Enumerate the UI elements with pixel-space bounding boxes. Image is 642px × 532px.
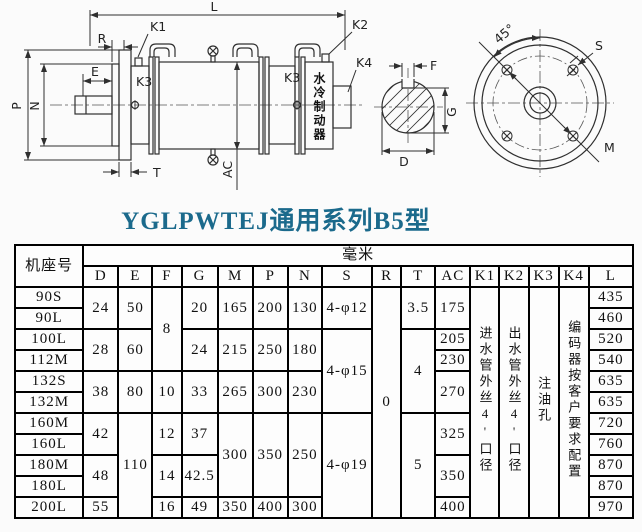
frame-size: 90S xyxy=(15,287,83,308)
table-cell: 33 xyxy=(182,371,218,413)
table-cell: 215 xyxy=(218,329,253,371)
table-cell: 28 xyxy=(83,329,118,371)
table-cell: 130 xyxy=(288,287,322,329)
table-cell: 37 xyxy=(182,413,218,455)
col-header-K1: K1 xyxy=(470,266,499,287)
dim-label-N: N xyxy=(27,101,42,110)
frame-size: 180M xyxy=(15,455,83,476)
table-cell: 4-φ12 xyxy=(322,287,372,329)
table-cell: 4 xyxy=(401,329,435,413)
k3-note: 注油孔 xyxy=(529,287,559,518)
table-cell: 270 xyxy=(435,371,470,413)
table-cell: 635 xyxy=(589,371,633,392)
dim-label-L: L xyxy=(211,0,218,14)
k2-note: 出水管外丝4'口径 xyxy=(499,287,528,518)
k1-note: 进水管外丝4'口径 xyxy=(470,287,499,518)
brake-label: 水冷制动器 xyxy=(312,71,326,142)
col-header-T: T xyxy=(401,266,435,287)
table-cell: 4-φ15 xyxy=(322,329,372,413)
frame-size: 160L xyxy=(15,434,83,455)
dim-label-K3b: K3 xyxy=(284,70,300,85)
table-cell: 230 xyxy=(288,371,322,413)
frame-size: 200L xyxy=(15,497,83,518)
dim-label-S: S xyxy=(595,38,603,53)
table-cell: 3.5 xyxy=(401,287,435,329)
dim-label-K2: K2 xyxy=(352,17,368,32)
col-header-D: D xyxy=(83,266,118,287)
table-cell: 16 xyxy=(152,497,181,518)
col-header-L: L xyxy=(589,266,633,287)
frame-size: 112M xyxy=(15,350,83,371)
table-cell: 300 xyxy=(288,497,322,518)
col-header-K2: K2 xyxy=(499,266,528,287)
side-view-dimensions xyxy=(24,10,356,190)
col-header-P: P xyxy=(253,266,288,287)
dim-label-F: F xyxy=(430,58,437,73)
spec-table: 机座号毫米DEFGMPNSRTACK1K2K3K4L90S24508201652… xyxy=(14,244,634,519)
table-cell: 55 xyxy=(83,497,118,518)
table-cell: 250 xyxy=(288,413,322,497)
table-cell: 325 xyxy=(435,413,470,455)
table-cell: 42.5 xyxy=(182,455,218,497)
frame-size: 180L xyxy=(15,476,83,497)
col-header-R: R xyxy=(372,266,401,287)
table-cell: 435 xyxy=(589,287,633,308)
col-header-N: N xyxy=(288,266,322,287)
table-cell: 24 xyxy=(83,287,118,329)
engineering-drawing: L R K1 K2 E P N T AC K3 K3 K4 水冷制动器 xyxy=(0,0,642,200)
table-cell: 870 xyxy=(589,455,633,476)
col-header-S: S xyxy=(322,266,372,287)
table-cell: 175 xyxy=(435,287,470,329)
dim-label-E: E xyxy=(91,64,99,79)
table-cell: 80 xyxy=(118,371,152,413)
frame-size: 132S xyxy=(15,371,83,392)
dim-label-P: P xyxy=(9,102,24,110)
table-cell: 300 xyxy=(218,413,253,497)
catalog-page: { "title": "YGLPWTEJ通用系列B5型", "accent_co… xyxy=(0,0,642,532)
dim-label-AC: AC xyxy=(220,161,235,178)
table-cell: 400 xyxy=(435,497,470,518)
col-header-G: G xyxy=(182,266,218,287)
table-cell: 24 xyxy=(182,329,218,371)
unit-header: 毫米 xyxy=(83,245,633,266)
table-cell: 200 xyxy=(253,287,288,329)
table-cell: 970 xyxy=(589,497,633,518)
table-cell: 250 xyxy=(253,329,288,371)
table-cell: 265 xyxy=(218,371,253,413)
spec-table-body: 机座号毫米DEFGMPNSRTACK1K2K3K4L90S24508201652… xyxy=(15,245,633,518)
col-header-E: E xyxy=(118,266,152,287)
flange-view xyxy=(466,29,614,177)
dim-label-D: D xyxy=(399,154,409,169)
table-cell: 48 xyxy=(83,455,118,497)
table-cell: 635 xyxy=(589,392,633,413)
dim-label-K4: K4 xyxy=(356,55,372,70)
frame-size: 90L xyxy=(15,308,83,329)
frame-size: 100L xyxy=(15,329,83,350)
table-cell: 49 xyxy=(182,497,218,518)
table-cell: 720 xyxy=(589,413,633,434)
table-cell: 300 xyxy=(253,371,288,413)
dim-label-K1: K1 xyxy=(150,19,166,34)
table-cell: 460 xyxy=(589,308,633,329)
table-cell: 760 xyxy=(589,434,633,455)
table-cell: 42 xyxy=(83,413,118,455)
table-cell: 5 xyxy=(401,413,435,518)
table-cell: 20 xyxy=(182,287,218,329)
k4-note: 编码器按客户要求配置 xyxy=(559,287,589,518)
frame-col-header: 机座号 xyxy=(15,245,83,287)
table-cell: 400 xyxy=(253,497,288,518)
dim-label-K3: K3 xyxy=(136,74,152,89)
dim-label-T: T xyxy=(152,165,161,180)
table-cell: 0 xyxy=(372,287,401,518)
dim-label-M: M xyxy=(604,140,615,155)
dim-label-R: R xyxy=(98,31,107,46)
table-cell: 38 xyxy=(83,371,118,413)
dim-label-G: G xyxy=(444,107,459,117)
table-cell: 230 xyxy=(435,350,470,371)
table-cell: 870 xyxy=(589,476,633,497)
table-cell: 350 xyxy=(253,413,288,497)
table-cell: 10 xyxy=(152,371,181,413)
table-cell: 205 xyxy=(435,329,470,350)
eye-bolt-icon xyxy=(208,46,218,165)
table-cell: 520 xyxy=(589,329,633,350)
table-cell: 50 xyxy=(118,287,152,329)
table-cell: 540 xyxy=(589,350,633,371)
col-header-AC: AC xyxy=(435,266,470,287)
col-header-F: F xyxy=(152,266,181,287)
col-header-K3: K3 xyxy=(529,266,559,287)
col-header-M: M xyxy=(218,266,253,287)
table-cell: 350 xyxy=(218,497,253,518)
table-cell: 12 xyxy=(152,413,181,455)
table-cell: 165 xyxy=(218,287,253,329)
table-cell: 4-φ19 xyxy=(322,413,372,518)
page-title: YGLPWTEJ通用系列B5型 xyxy=(0,201,552,237)
frame-size: 132M xyxy=(15,392,83,413)
table-cell: 110 xyxy=(118,413,152,518)
col-header-K4: K4 xyxy=(559,266,589,287)
table-cell: 350 xyxy=(435,455,470,497)
frame-size: 160M xyxy=(15,413,83,434)
table-cell: 60 xyxy=(118,329,152,371)
table-cell: 8 xyxy=(152,287,181,371)
table-cell: 14 xyxy=(152,455,181,497)
table-cell: 180 xyxy=(288,329,322,371)
